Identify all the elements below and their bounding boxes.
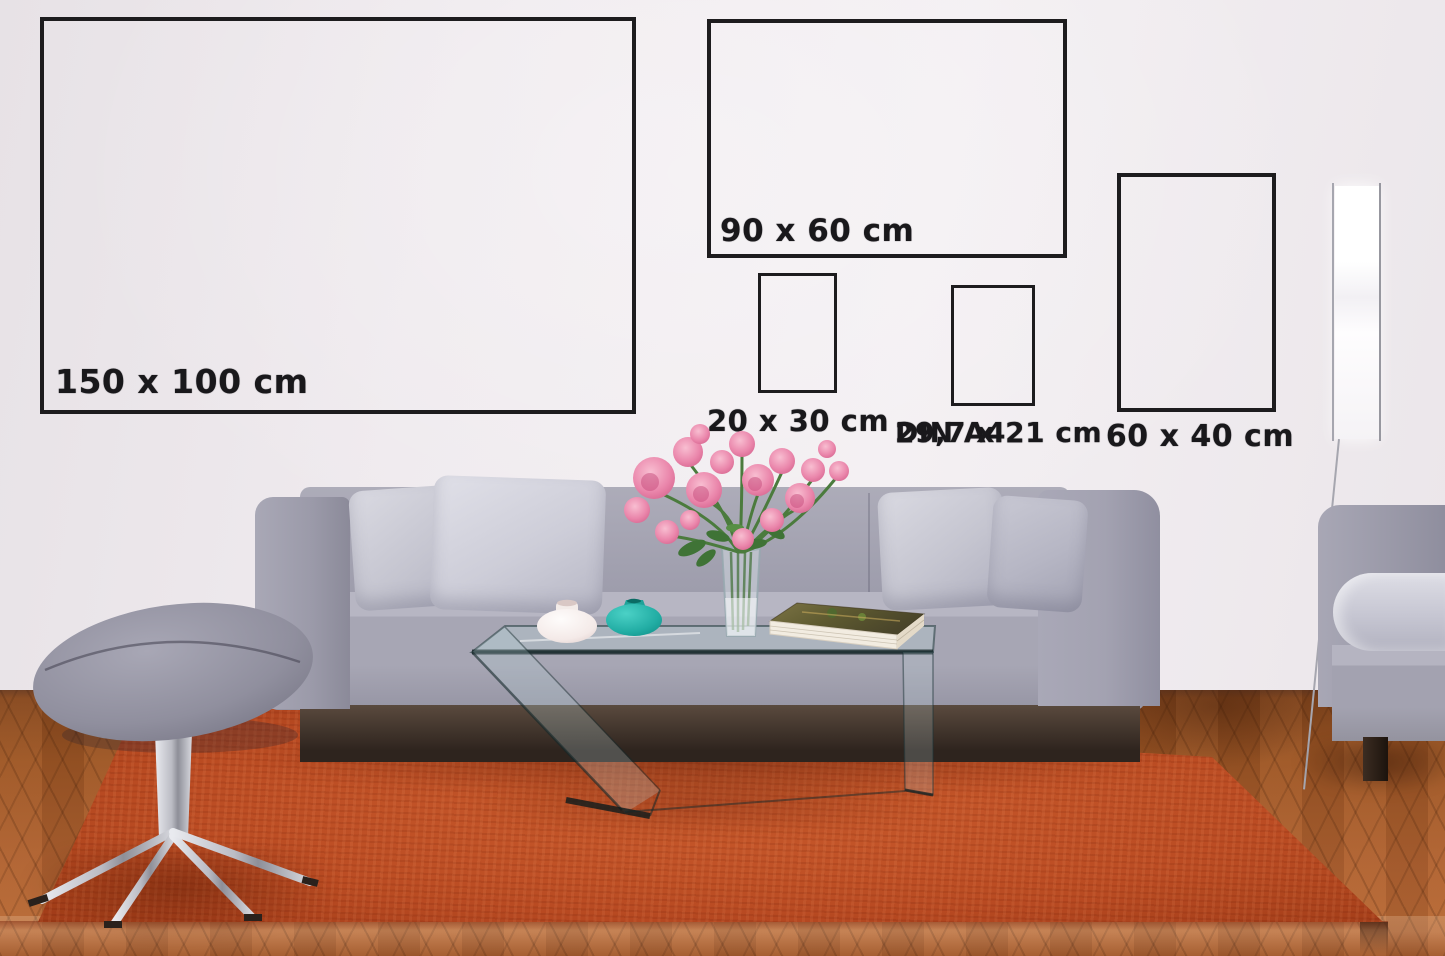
size-label-60x40: 60 x 40 cm — [1100, 421, 1300, 452]
size-frame-20x30 — [758, 273, 837, 393]
floor-lamp-diffuser — [1335, 186, 1379, 439]
size-label-150x100: 150 x 100 cm — [55, 365, 308, 399]
size-frame-150x100 — [40, 17, 636, 414]
pillow — [986, 495, 1089, 613]
din-a4-dimensions: 29,7 x 21 cm — [895, 418, 1102, 447]
floor-lamp-rod-right — [1379, 183, 1381, 441]
floor-lamp-rod-left — [1332, 183, 1334, 441]
size-frame-din-a4 — [951, 285, 1035, 406]
sofa-seat — [268, 592, 1145, 710]
size-label-20x30: 20 x 30 cm — [700, 406, 896, 436]
armchair-leg — [1363, 737, 1388, 781]
armchair-seat — [1332, 645, 1445, 741]
table-shadow — [468, 778, 942, 836]
pillow — [430, 475, 607, 615]
size-frame-60x40 — [1117, 173, 1276, 412]
sofa-base — [300, 705, 1140, 762]
size-label-90x60: 90 x 60 cm — [720, 215, 914, 247]
stool-shadow — [25, 848, 335, 940]
scene: 150 x 100 cm 90 x 60 cm 20 x 30 cm DIN A… — [0, 0, 1445, 956]
sofa-arm-left — [255, 497, 350, 709]
chair-leg-reflection — [1360, 922, 1388, 954]
sofa-seam — [868, 493, 870, 605]
armchair-bolster-cushion — [1333, 573, 1445, 651]
